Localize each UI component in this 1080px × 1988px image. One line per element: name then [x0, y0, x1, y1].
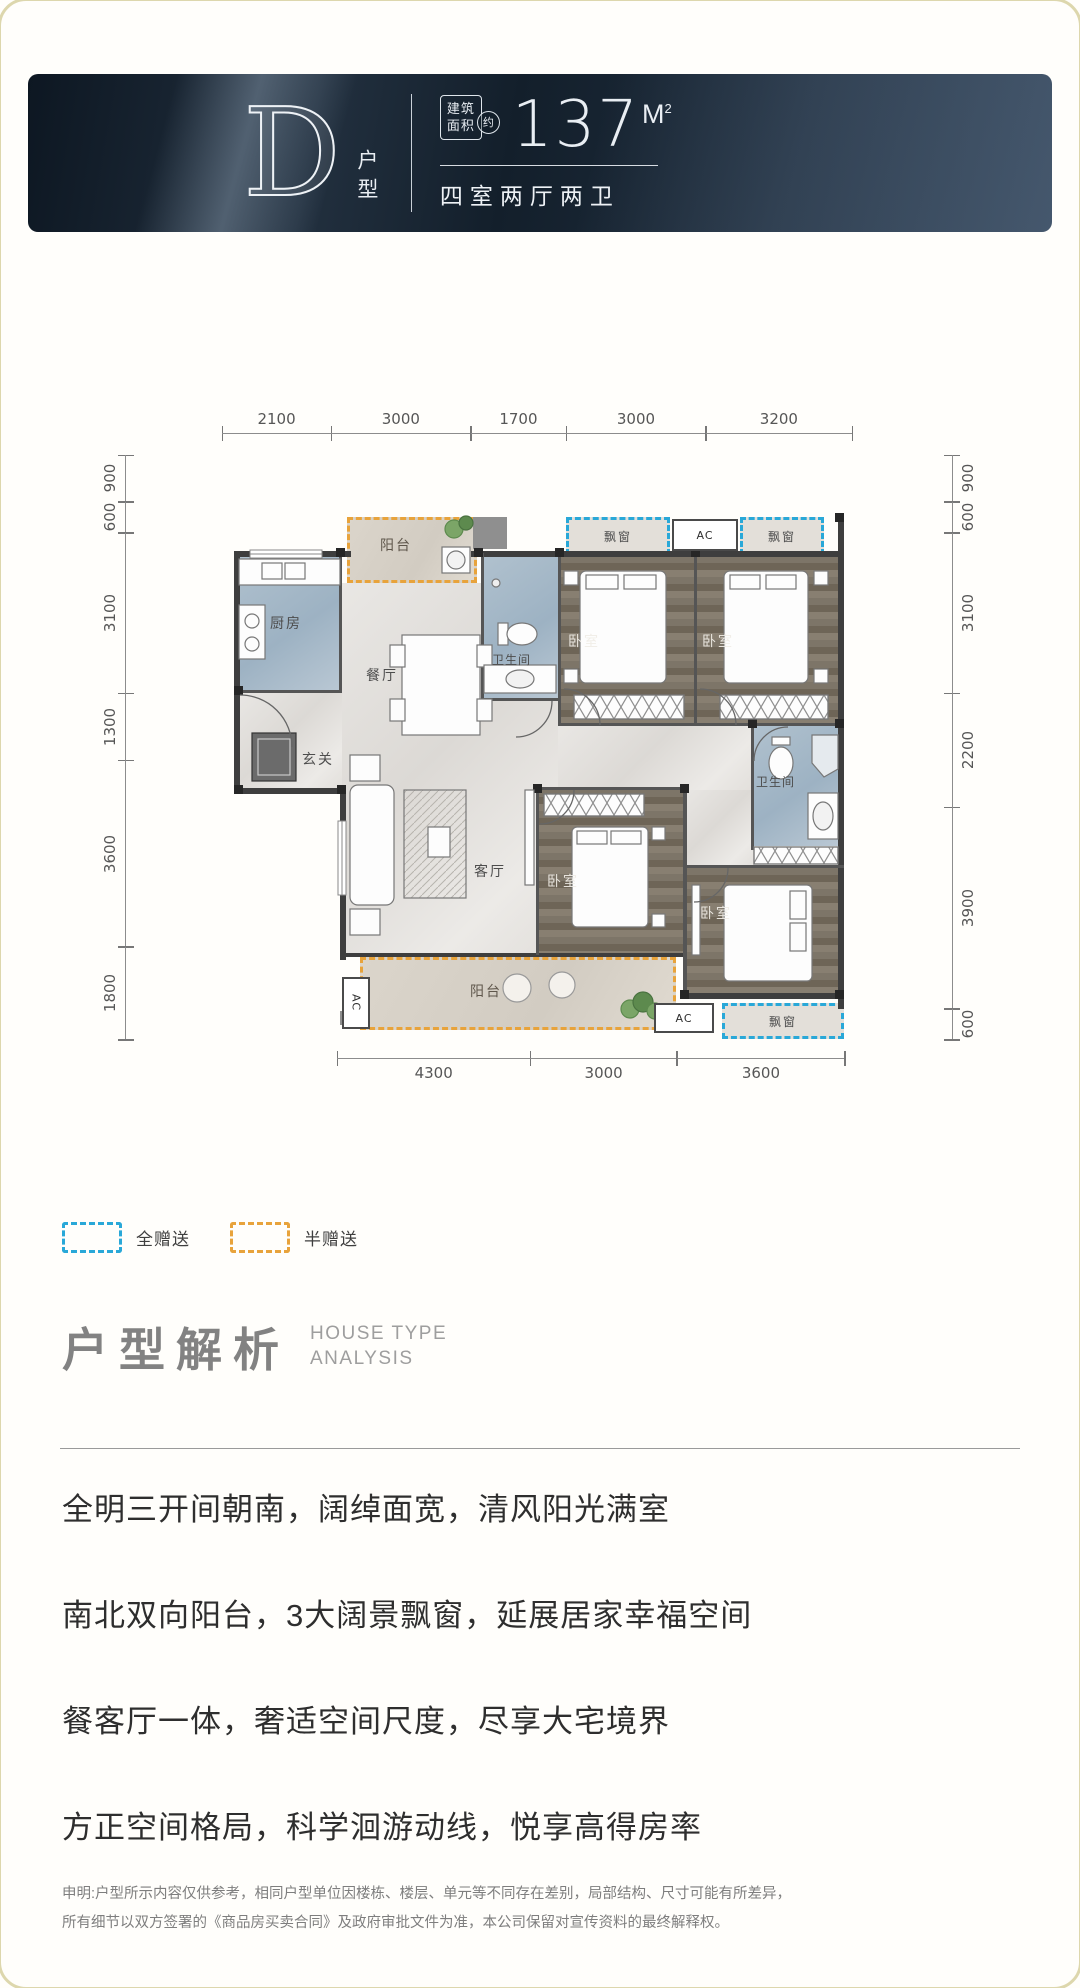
- dim-label: 1700: [499, 410, 537, 428]
- dims-top: 2100 3000 1700 3000 3200: [222, 400, 852, 444]
- dim-label: 3200: [760, 410, 798, 428]
- bedroom4-label: 卧室: [700, 903, 732, 923]
- entry-label: 玄关: [302, 749, 334, 769]
- analysis-subtitle-line1: HOUSE TYPE: [310, 1322, 447, 1347]
- approx-badge: 约: [477, 111, 500, 134]
- dim-label: 3600: [101, 835, 119, 873]
- area-superscript: 2: [665, 101, 672, 116]
- area-unit: M2: [642, 99, 672, 130]
- ac-label: AC: [350, 994, 363, 1011]
- balcony-top-label: 阳台: [380, 535, 412, 555]
- banner-divider: [411, 94, 412, 212]
- nightstand: [814, 571, 828, 585]
- nightstand: [564, 669, 578, 683]
- dim-label: 2200: [959, 731, 977, 769]
- banner-content: D 户型 建筑 面积 约 137 M2 四室两厅两卫: [243, 74, 672, 232]
- plant-icon: [459, 516, 473, 530]
- toilet-tank: [772, 737, 790, 745]
- ac-label: AC: [675, 1012, 692, 1025]
- dining-label: 餐厅: [366, 665, 398, 685]
- door-arcs: [240, 689, 788, 902]
- legend-half-gift-swatch: [230, 1222, 290, 1253]
- sofa: [350, 785, 394, 905]
- dim-segment: 1700: [471, 400, 567, 444]
- area-block: 建筑 面积 约 137 M2 四室两厅两卫: [440, 95, 672, 212]
- dim-label: 600: [959, 503, 977, 532]
- dims-right: 900 600 3100 2200 3900 600: [944, 455, 982, 1040]
- dim-segment: 3200: [706, 400, 852, 444]
- dim-segment: 900: [944, 455, 982, 502]
- dim-label: 4300: [415, 1064, 453, 1082]
- dim-label: 3000: [585, 1064, 623, 1082]
- floor-plan: 飘窗 飘窗 飘窗: [222, 455, 852, 1040]
- unit-banner: D 户型 建筑 面积 约 137 M2 四室两厅两卫: [28, 74, 1052, 232]
- tv-panel: [692, 885, 700, 955]
- analysis-points: 全明三开间朝南，阔绰面宽，清风阳光满室 南北双向阳台，3大阔景飘窗，延展居家幸福…: [62, 1490, 1042, 1914]
- analysis-point: 方正空间格局，科学洄游动线，悦享高得房率: [62, 1808, 1042, 1848]
- legend-full-gift-swatch: [62, 1222, 122, 1253]
- tv-cabinet: [525, 790, 534, 885]
- analysis-header: 户型解析 HOUSE TYPE ANALYSIS: [62, 1322, 447, 1373]
- pillow: [624, 575, 656, 589]
- bedroom1-label: 卧室: [568, 631, 600, 651]
- dim-label: 3900: [959, 889, 977, 927]
- dim-label: 3000: [617, 410, 655, 428]
- dim-label: 1300: [101, 708, 119, 746]
- bathroom1-label: 卫生间: [492, 651, 531, 668]
- ac-label: AC: [696, 529, 713, 542]
- disclaimer: 申明:户型所示内容仅供参考，相同户型单位因楼栋、楼层、单元等不同存在差别，局部结…: [62, 1884, 1042, 1942]
- pillow: [790, 891, 806, 919]
- chair: [477, 645, 492, 667]
- closet-hatch: [754, 847, 838, 864]
- dim-segment: 3600: [677, 1048, 845, 1088]
- banner-underline: [440, 165, 658, 166]
- dim-label: 3100: [959, 594, 977, 632]
- pillow: [730, 575, 760, 589]
- legend: 全赠送 半赠送: [62, 1222, 358, 1253]
- basin: [813, 802, 833, 830]
- area-caption-box: 建筑 面积: [440, 95, 482, 140]
- dim-label: 600: [101, 503, 119, 532]
- dim-segment: 3000: [530, 1048, 676, 1088]
- dim-segment: 600: [96, 502, 134, 533]
- area-caption-line2: 面积: [447, 117, 475, 135]
- shower: [812, 735, 838, 777]
- analysis-title: 户型解析: [62, 1327, 290, 1373]
- windows: [250, 550, 346, 895]
- layout-description: 四室两厅两卫: [440, 177, 672, 211]
- kitchen-sink: [285, 563, 305, 579]
- analysis-point: 南北双向阳台，3大阔景飘窗，延展居家幸福空间: [62, 1596, 1042, 1636]
- disclaimer-line2: 所有细节以双方签署的《商品房买卖合同》及政府审批文件为准，本公司保留对宣传资料的…: [62, 1913, 1042, 1933]
- lounge-chair: [503, 974, 531, 1002]
- lounge-chair: [549, 972, 575, 998]
- pillow: [790, 923, 806, 951]
- ac-unit-top: AC: [672, 519, 738, 551]
- area-value: 137: [512, 95, 640, 156]
- dim-segment: 2100: [222, 400, 331, 444]
- nightstand: [564, 571, 578, 585]
- toilet: [507, 623, 537, 645]
- dim-label: 1800: [101, 974, 119, 1012]
- pillow: [766, 575, 796, 589]
- nightstand: [652, 827, 665, 840]
- chair: [390, 645, 405, 667]
- dim-segment: 600: [944, 1009, 982, 1040]
- dim-segment: 2200: [944, 693, 982, 807]
- ac-unit-left: AC: [342, 977, 370, 1029]
- analysis-subtitle: HOUSE TYPE ANALYSIS: [310, 1322, 447, 1373]
- dim-label: 900: [959, 464, 977, 493]
- flyer-page: D 户型 建筑 面积 约 137 M2 四室两厅两卫 2100 3000: [0, 0, 1080, 1988]
- area-caption-line1: 建筑: [447, 100, 475, 118]
- living-label: 客厅: [474, 861, 506, 881]
- dim-segment: 600: [944, 502, 982, 533]
- coffee-table: [428, 827, 450, 857]
- analysis-point: 全明三开间朝南，阔绰面宽，清风阳光满室: [62, 1490, 1042, 1530]
- ac-unit-bottom: AC: [654, 1003, 714, 1033]
- nightstand: [814, 669, 828, 683]
- wardrobe-hatch: [720, 695, 828, 719]
- chair: [390, 699, 405, 721]
- area-row: 建筑 面积 约 137 M2: [440, 95, 672, 156]
- bathroom2-label: 卫生间: [756, 773, 795, 790]
- dim-segment: 900: [96, 455, 134, 502]
- dim-segment: 3600: [96, 760, 134, 946]
- legend-full-gift-label: 全赠送: [136, 1225, 190, 1250]
- dim-segment: 3900: [944, 807, 982, 1009]
- pillow: [611, 831, 641, 844]
- balcony-bottom-label: 阳台: [470, 981, 502, 1001]
- armchair: [350, 909, 380, 935]
- bedroom2-label: 卧室: [702, 631, 734, 651]
- disclaimer-line1: 申明:户型所示内容仅供参考，相同户型单位因楼栋、楼层、单元等不同存在差别，局部结…: [62, 1884, 1042, 1904]
- kitchen-sink: [262, 563, 282, 579]
- balcony-basin: [447, 551, 465, 569]
- dim-segment: 3100: [944, 533, 982, 693]
- dim-segment: 1800: [96, 947, 134, 1040]
- dims-bottom: 4300 3000 3600: [337, 1048, 845, 1088]
- armchair: [350, 755, 380, 781]
- nightstand: [652, 914, 665, 927]
- basin: [506, 670, 534, 688]
- dim-segment: 1300: [96, 693, 134, 760]
- wardrobe-hatch: [574, 695, 684, 719]
- dim-segment: 4300: [337, 1048, 530, 1088]
- wardrobe-hatch: [544, 794, 644, 816]
- dim-label: 900: [101, 464, 119, 493]
- bedroom3-label: 卧室: [547, 871, 579, 891]
- analysis-divider: [60, 1448, 1020, 1449]
- entry-rug: [252, 733, 296, 781]
- dim-label: 3600: [742, 1064, 780, 1082]
- legend-half-gift-label: 半赠送: [304, 1225, 358, 1250]
- analysis-point: 餐客厅一体，奢适空间尺度，尽享大宅境界: [62, 1702, 1042, 1742]
- dim-label: 600: [959, 1010, 977, 1039]
- dim-segment: 3000: [331, 400, 471, 444]
- dim-label: 3100: [101, 594, 119, 632]
- pillow: [586, 575, 618, 589]
- dim-label: 2100: [257, 410, 295, 428]
- dim-segment: 3000: [566, 400, 706, 444]
- kitchen-label: 厨房: [270, 613, 302, 633]
- plan-linework: [222, 455, 852, 1040]
- dining-table: [402, 635, 480, 735]
- dims-left: 900 600 3100 1300 3600 1800: [96, 455, 134, 1040]
- chair: [477, 699, 492, 721]
- dim-label: 3000: [382, 410, 420, 428]
- dim-segment: 3100: [96, 533, 134, 693]
- analysis-subtitle-line2: ANALYSIS: [310, 1347, 447, 1372]
- pillow: [577, 831, 607, 844]
- bathroom1-door-arc: [516, 701, 552, 737]
- unit-letter: D: [243, 92, 341, 214]
- unit-type-label: 户型: [351, 99, 381, 207]
- shower-icon: [492, 579, 500, 587]
